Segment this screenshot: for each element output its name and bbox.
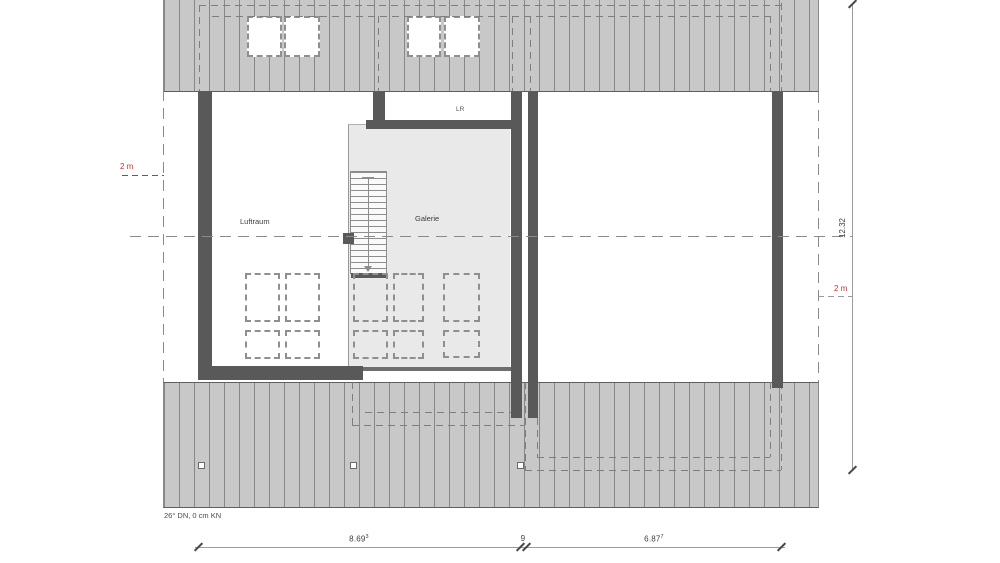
dimension-line-bottom <box>195 547 785 548</box>
dimension-label-left-segment: 8.693 <box>198 534 520 544</box>
roof-b-dash-v2 <box>525 382 526 470</box>
stair-walk-line <box>368 177 369 267</box>
roof-anchor-square-3 <box>517 462 524 469</box>
wall-right-stub <box>772 382 783 388</box>
dashed-cell <box>353 273 388 322</box>
roof-b-dash-h4 <box>525 470 781 471</box>
dashed-cell <box>245 273 280 322</box>
height-marker-right-line <box>818 296 853 297</box>
wall-bottom-left <box>198 366 363 380</box>
room-label-galerie: Galerie <box>415 214 439 223</box>
party-wall-stub-b <box>528 382 538 418</box>
roof-pitch-note: 26° DN, 0 cm KN <box>164 511 221 520</box>
roof-b-dash-h2 <box>352 425 525 426</box>
floor-plan-canvas: Luftraum Galerie LR 26° DN, 0 cm KN 2 m … <box>0 0 1000 563</box>
height-marker-left-line <box>122 175 164 176</box>
section-line-left <box>163 0 164 382</box>
dim-tick <box>848 465 857 474</box>
skylight-window-1 <box>247 16 282 57</box>
dashed-cell <box>393 330 424 359</box>
dashed-cell <box>353 330 388 359</box>
stair-direction-arrow <box>364 266 372 272</box>
party-wall-right-leaf <box>528 92 538 382</box>
skylight-window-2 <box>284 16 320 57</box>
ridge-center-line <box>130 236 852 237</box>
gable-line-right <box>818 92 819 382</box>
galerie-slab-edge <box>361 367 511 371</box>
skylight-window-3 <box>407 16 441 57</box>
roof-strip-bottom <box>163 382 819 508</box>
dashed-cell <box>285 330 320 359</box>
room-label-lr: LR <box>456 106 464 113</box>
roof-dash-v6 <box>781 3 782 91</box>
stair-post <box>343 233 354 244</box>
dashed-cell <box>245 330 280 359</box>
party-wall-left-leaf <box>511 92 522 382</box>
height-marker-left-label: 2 m <box>120 162 133 171</box>
dimension-line-right <box>852 3 853 471</box>
height-marker-right-label: 2 m <box>834 284 847 293</box>
dimension-label-right-segment: 6.877 <box>527 534 781 544</box>
roof-b-dash-v1 <box>352 382 353 425</box>
roof-eave-dash-outer <box>199 5 781 6</box>
dashed-cell <box>285 273 320 322</box>
dashed-cell <box>443 273 480 322</box>
roof-eave-dash-inner <box>212 16 770 17</box>
roof-b-dash-h3 <box>537 457 770 458</box>
wall-lr-corridor-left <box>373 92 385 122</box>
dim-sup: 7 <box>661 534 664 540</box>
skylight-window-4 <box>444 16 480 57</box>
roof-dash-v5 <box>770 16 771 91</box>
roof-dash-v3 <box>512 16 513 91</box>
roof-anchor-square-1 <box>198 462 205 469</box>
roof-dash-v2 <box>378 16 379 91</box>
party-wall-stub-a <box>511 382 522 418</box>
dimension-label-vertical: 12.32 <box>838 218 847 238</box>
dim-sup: 3 <box>366 534 369 540</box>
roof-b-dash-h1 <box>365 412 511 413</box>
room-label-luftraum: Luftraum <box>240 217 270 226</box>
dashed-cell <box>393 273 424 322</box>
roof-dash-v1 <box>199 5 200 91</box>
dim-value: 6.87 <box>644 535 660 544</box>
stair-walk-line-start <box>362 177 374 178</box>
dim-value: 8.69 <box>349 535 365 544</box>
wall-right <box>772 92 783 382</box>
roof-b-dash-v4 <box>770 382 771 457</box>
dashed-cell <box>443 330 480 358</box>
roof-b-dash-v5 <box>781 382 782 470</box>
roof-anchor-square-2 <box>350 462 357 469</box>
roof-dash-v4 <box>530 16 531 91</box>
wall-galerie-top <box>366 120 511 129</box>
